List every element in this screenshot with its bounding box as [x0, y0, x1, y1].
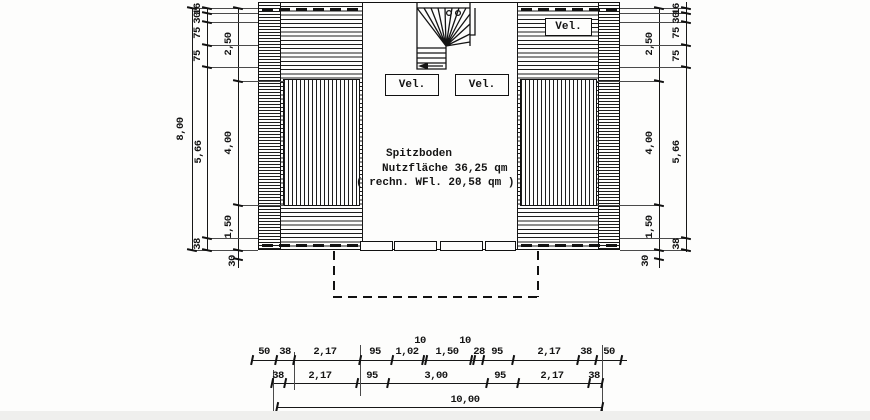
right-partition-wall	[517, 2, 518, 250]
extension-line	[238, 205, 284, 206]
dim-line	[277, 407, 602, 408]
dim-label: 95	[366, 370, 378, 382]
extension-line	[207, 67, 258, 68]
velux-window-left: Vel.	[385, 74, 439, 96]
dim-label: 1,50	[644, 215, 656, 238]
extension-line	[620, 67, 686, 68]
dim-label: 38	[272, 370, 284, 382]
dim-label: 5,66	[671, 140, 683, 163]
dim-line	[252, 360, 627, 361]
dim-label: 30	[227, 255, 239, 267]
window-frame	[360, 241, 393, 251]
velux-label: Vel.	[399, 79, 425, 91]
dim-label: 10,00	[450, 394, 479, 406]
dim-label: 38	[588, 370, 600, 382]
extension-line	[192, 250, 258, 251]
dim-label: 30	[192, 12, 204, 24]
room-area-note: ( rechn. WFl. 20,58 qm )	[356, 176, 514, 191]
dim-label: 5,66	[193, 140, 205, 163]
dim-label: 2,17	[540, 370, 563, 382]
dim-label: 75	[671, 27, 683, 39]
window-frame	[440, 241, 483, 251]
dim-line	[659, 8, 660, 268]
projection-dashed-left	[333, 251, 335, 297]
window-frame	[394, 241, 437, 251]
velux-window-right: Vel.	[455, 74, 509, 96]
dim-label: 4,00	[644, 131, 656, 154]
dim-label: 95	[494, 370, 506, 382]
dim-label: 2,50	[223, 32, 235, 55]
dim-line	[238, 8, 239, 268]
velux-label: Vel.	[469, 79, 495, 91]
dim-label: 4,00	[223, 131, 235, 154]
velux-label: Vel.	[555, 21, 581, 33]
velux-window-top: Vel.	[545, 18, 592, 36]
projection-dashed-bottom	[333, 296, 539, 298]
dim-label: 38	[279, 346, 291, 358]
dim-label: 95	[369, 346, 381, 358]
winder-staircase	[405, 2, 485, 77]
extension-line	[238, 81, 284, 82]
dim-label: 75	[192, 50, 204, 62]
dim-label: 50	[603, 346, 615, 358]
scan-artifact-band	[0, 411, 870, 420]
dim-label: 30	[671, 12, 683, 24]
extension-line	[597, 81, 659, 82]
dim-label: 10	[414, 335, 426, 347]
dim-label: 50	[258, 346, 270, 358]
dim-label: 1,02	[395, 346, 418, 358]
dim-label: 2,17	[537, 346, 560, 358]
stair-winder-treads	[417, 8, 470, 46]
dim-label: 1,50	[435, 346, 458, 358]
extension-line	[597, 205, 659, 206]
dim-label: 30	[640, 255, 652, 267]
room-area: Nutzfläche 36,25 qm	[356, 162, 514, 177]
dim-label: 38	[192, 238, 204, 250]
left-partition-wall	[362, 2, 363, 250]
dim-label: 38	[671, 238, 683, 250]
floor-plan-drawing: Vel. Vel. Vel. Spitzboden Nutzfläche 36,…	[0, 0, 870, 420]
dim-label: 2,50	[644, 32, 656, 55]
dim-label: 38	[580, 346, 592, 358]
room-name: Spitzboden	[356, 147, 514, 162]
extension-line	[207, 13, 258, 14]
dim-label: 8,00	[175, 117, 187, 140]
stair-treads	[417, 48, 446, 63]
dim-label: 3,00	[424, 370, 447, 382]
extension-line	[207, 22, 258, 23]
projection-dashed-right	[537, 251, 539, 297]
extension-line	[620, 250, 686, 251]
dim-line	[192, 8, 193, 250]
window-frame	[485, 241, 516, 251]
room-annotation: Spitzboden Nutzfläche 36,25 qm ( rechn. …	[356, 147, 514, 191]
dim-label: 10	[459, 335, 471, 347]
dim-label: 2,17	[313, 346, 336, 358]
dim-label: 75	[192, 27, 204, 39]
dim-tick	[600, 378, 604, 388]
dim-label: 28	[473, 346, 485, 358]
dim-line	[686, 2, 687, 252]
dim-label: 1,50	[223, 215, 235, 238]
dim-label: 2,17	[308, 370, 331, 382]
extension-line	[360, 345, 361, 396]
dim-label: 95	[491, 346, 503, 358]
dim-label: 75	[671, 50, 683, 62]
dim-line	[272, 383, 602, 384]
